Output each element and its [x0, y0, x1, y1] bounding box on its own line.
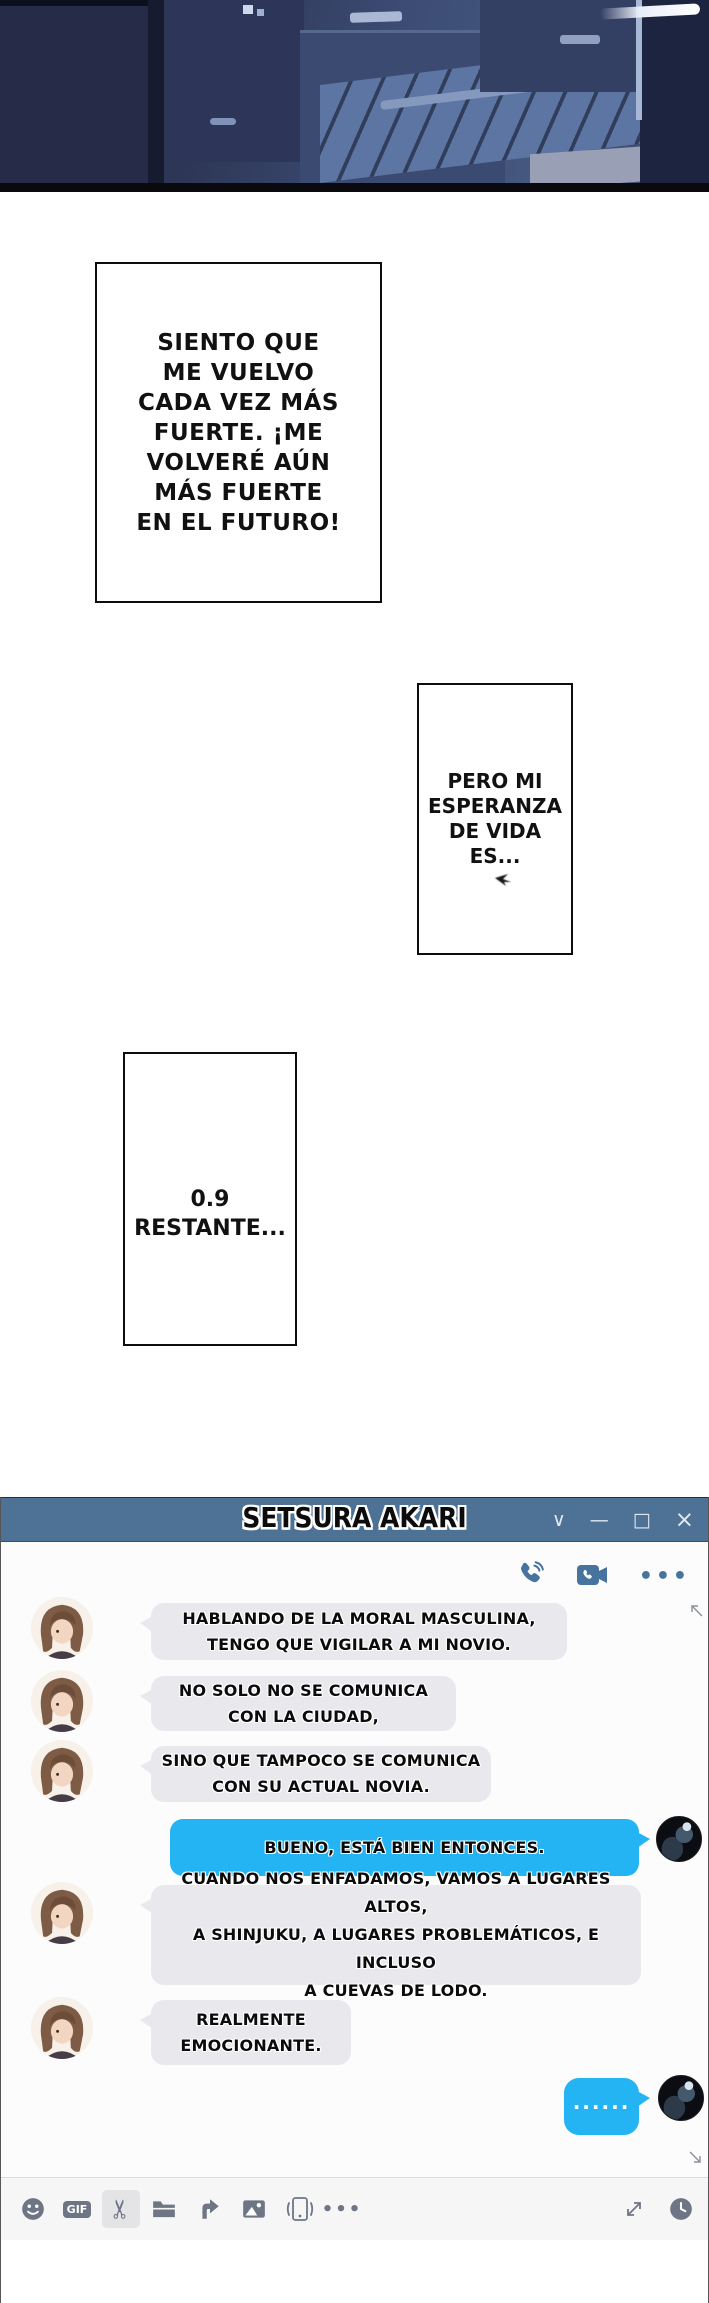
message-text: BUENO, ESTÁ BIEN ENTONCES.	[264, 1835, 544, 1861]
toolbar-more-button[interactable]: •••	[323, 2190, 361, 2228]
manga-page: SIENTO QUE ME VUELVO CADA VEZ MÁS FUERTE…	[0, 0, 709, 2303]
narration-text: SIENTO QUE ME VUELVO CADA VEZ MÁS FUERTE…	[136, 328, 340, 538]
message-history-button[interactable]	[662, 2190, 700, 2228]
message-bubble-received: CUANDO NOS ENFADAMOS, VAMOS A LUGARES AL…	[151, 1885, 641, 1985]
maximize-button[interactable]: □	[633, 1511, 651, 1530]
contact-avatar[interactable]	[31, 1670, 93, 1732]
ellipsis-icon: •••	[322, 2199, 363, 2220]
artwork-shape	[0, 0, 155, 183]
screenshot-button[interactable]: ✂	[102, 2190, 140, 2228]
call-actions: •••	[515, 1560, 690, 1594]
artwork-shape	[210, 118, 236, 125]
message-input-area[interactable]	[1, 2240, 708, 2303]
message-bubble-sent: ······	[564, 2078, 639, 2135]
shake-window-button[interactable]	[278, 2190, 322, 2228]
scissors-icon: ✂	[108, 2198, 134, 2220]
message-area[interactable]: ••• HABLANDO DE LA MORAL MASCULINA, TENG…	[1, 1542, 708, 2177]
chat-titlebar: SETSURA AKARI ∨ — □ ×	[1, 1497, 708, 1542]
gif-icon: GIF	[63, 2201, 92, 2218]
chat-toolbar: GIF ✂ •••	[1, 2177, 708, 2240]
send-folder-button[interactable]	[145, 2190, 183, 2228]
panel-divider-bar	[0, 183, 709, 192]
gif-button[interactable]: GIF	[58, 2190, 96, 2228]
contact-avatar[interactable]	[31, 1740, 93, 1802]
narration-text: PERO MI ESPERANZA DE VIDA ES...	[428, 769, 562, 869]
message-text: HABLANDO DE LA MORAL MASCULINA, TENGO QU…	[182, 1606, 535, 1658]
artwork-shape	[636, 0, 642, 120]
close-button[interactable]: ×	[675, 1509, 694, 1532]
contact-avatar[interactable]	[31, 1597, 93, 1659]
send-file-button[interactable]	[191, 2190, 229, 2228]
contact-avatar[interactable]	[31, 1882, 93, 1944]
message-bubble-received: HABLANDO DE LA MORAL MASCULINA, TENGO QU…	[151, 1603, 567, 1660]
scroll-to-bottom-button[interactable]	[688, 2150, 704, 2170]
message-text: ······	[573, 2094, 631, 2120]
narration-box-2: PERO MI ESPERANZA DE VIDA ES...	[417, 683, 573, 955]
artwork-shape	[350, 11, 402, 23]
minimize-button[interactable]: —	[590, 1511, 609, 1530]
artwork-shape	[148, 0, 164, 183]
message-text: CUANDO NOS ENFADAMOS, VAMOS A LUGARES AL…	[161, 1865, 631, 2005]
artwork-shape	[243, 5, 253, 14]
more-options-button[interactable]: •••	[639, 1572, 690, 1582]
picture-button[interactable]	[235, 2190, 273, 2228]
message-text: NO SOLO NO SE COMUNICA CON LA CIUDAD,	[179, 1678, 428, 1730]
artwork-shape	[640, 0, 709, 183]
narration-text: 0.9 RESTANTE...	[134, 1185, 286, 1243]
message-bubble-received: SINO QUE TAMPOCO SE COMUNICA CON SU ACTU…	[151, 1746, 491, 1802]
manga-artwork-panel	[0, 0, 709, 183]
emoji-button[interactable]	[14, 2190, 52, 2228]
message-bubble-received: NO SOLO NO SE COMUNICA CON LA CIUDAD,	[151, 1676, 456, 1731]
narration-box-3: 0.9 RESTANTE...	[123, 1052, 297, 1346]
message-text: SINO QUE TAMPOCO SE COMUNICA CON SU ACTU…	[162, 1748, 481, 1800]
scroll-to-top-button[interactable]	[688, 1602, 704, 1622]
artwork-shape	[560, 35, 600, 44]
chevron-down-icon[interactable]: ∨	[552, 1511, 566, 1530]
contact-avatar[interactable]	[31, 1997, 93, 2059]
chat-window: SETSURA AKARI ∨ — □ × •••	[0, 1497, 709, 2303]
artwork-shape	[164, 0, 304, 162]
voice-call-button[interactable]	[515, 1560, 545, 1594]
message-text: REALMENTE EMOCIONANTE.	[180, 2007, 321, 2059]
expand-input-button[interactable]	[615, 2190, 653, 2228]
window-controls: ∨ — □ ×	[552, 1498, 694, 1543]
mouse-cursor	[494, 872, 512, 891]
user-avatar[interactable]	[656, 1816, 702, 1862]
video-call-button[interactable]	[575, 1561, 609, 1593]
artwork-shape	[257, 9, 264, 16]
message-bubble-received: REALMENTE EMOCIONANTE.	[151, 2000, 351, 2065]
user-avatar[interactable]	[658, 2075, 704, 2121]
narration-box-1: SIENTO QUE ME VUELVO CADA VEZ MÁS FUERTE…	[95, 262, 382, 603]
